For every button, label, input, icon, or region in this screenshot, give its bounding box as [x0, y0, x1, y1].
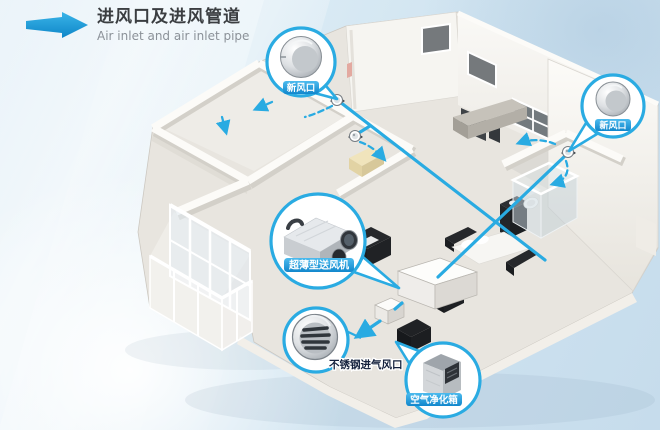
air-purifier-box-icon: [423, 354, 461, 399]
stainless-louver-vent-icon: [293, 315, 338, 360]
callout-label: 新风口: [287, 82, 316, 94]
window-opening: [422, 24, 450, 54]
callout-fresh-air-top: 新风口: [267, 28, 335, 96]
callout-slim-fan: 超薄型送风机: [271, 194, 365, 288]
door-accent: [347, 62, 352, 78]
legend-title-en: Air inlet and air inlet pipe: [97, 29, 249, 43]
callout-fresh-air-right: 新风口: [582, 75, 644, 137]
ventilation-diagram: 进风口及进风管道 Air inlet and air inlet pipe: [0, 0, 660, 430]
callout-label: 空气净化箱: [410, 394, 458, 406]
legend-title-zh: 进风口及进风管道: [97, 8, 249, 28]
round-fresh-air-diffuser-icon: [281, 37, 322, 78]
callout-label: 超薄型送风机: [288, 259, 349, 272]
floor-plan-illustration: 新风口 新风口: [0, 0, 660, 430]
right-arrow-icon: [26, 12, 88, 38]
callout-label: 不锈钢进气风口: [329, 358, 403, 371]
round-fresh-air-diffuser-icon: [596, 82, 630, 116]
legend-header: 进风口及进风管道 Air inlet and air inlet pipe: [26, 8, 249, 43]
back-center-wall: [346, 12, 462, 112]
callout-purifier: 空气净化箱: [406, 343, 480, 417]
callout-label: 新风口: [599, 120, 626, 132]
